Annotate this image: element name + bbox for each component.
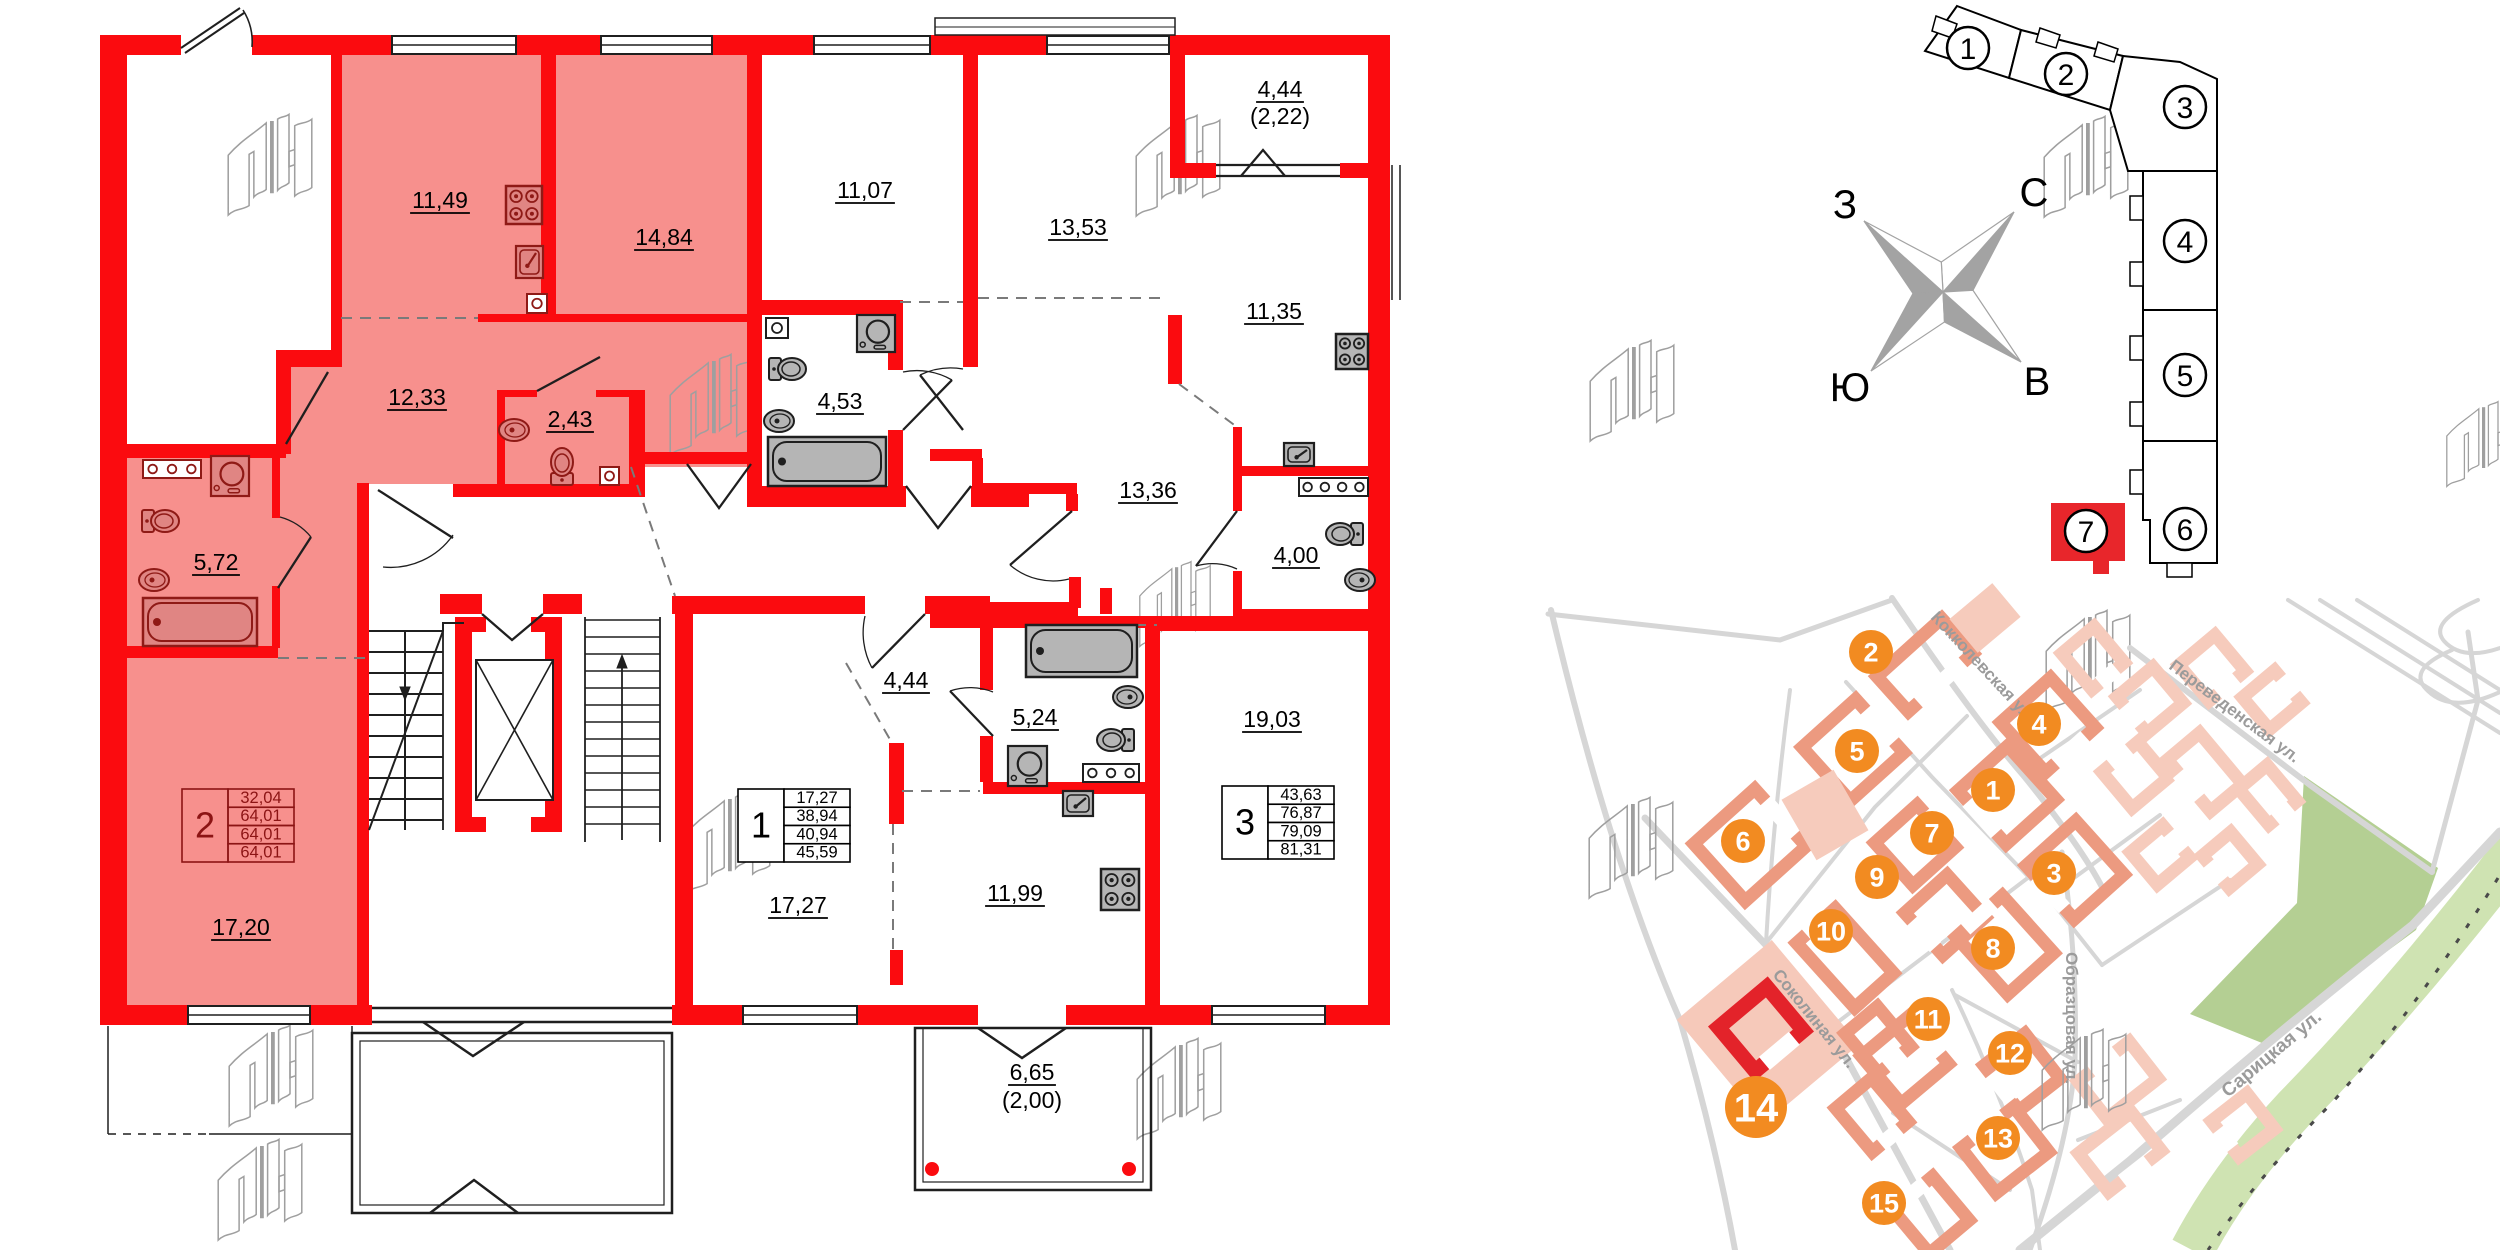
svg-text:1: 1 — [1960, 33, 1977, 66]
svg-text:12: 12 — [1995, 1039, 2025, 1069]
svg-text:6: 6 — [1735, 827, 1750, 857]
svg-text:11: 11 — [1914, 1005, 1943, 1035]
svg-text:6: 6 — [2177, 514, 2194, 547]
svg-text:17,20: 17,20 — [212, 914, 270, 940]
svg-text:64,01: 64,01 — [240, 825, 281, 843]
svg-text:14: 14 — [1734, 1086, 1779, 1130]
svg-text:11,07: 11,07 — [837, 177, 893, 203]
svg-text:Образцовая ул.: Образцовая ул. — [2062, 952, 2081, 1084]
svg-text:43,63: 43,63 — [1280, 786, 1321, 804]
svg-text:(2,22): (2,22) — [1250, 103, 1310, 129]
svg-text:10: 10 — [1816, 917, 1846, 947]
svg-text:3: 3 — [2046, 859, 2061, 889]
svg-text:12,33: 12,33 — [388, 384, 446, 410]
svg-text:В: В — [2024, 360, 2051, 404]
svg-text:45,59: 45,59 — [796, 844, 837, 862]
svg-text:8: 8 — [1985, 934, 2000, 964]
svg-text:13: 13 — [1983, 1124, 2013, 1154]
svg-text:40,94: 40,94 — [796, 825, 837, 843]
svg-text:32,04: 32,04 — [240, 789, 281, 807]
svg-text:2: 2 — [2058, 59, 2075, 92]
svg-text:5: 5 — [2177, 360, 2194, 393]
svg-text:4,00: 4,00 — [1274, 542, 1319, 568]
svg-text:11,99: 11,99 — [987, 880, 1043, 906]
svg-text:64,01: 64,01 — [240, 844, 281, 862]
svg-text:(2,00): (2,00) — [1002, 1087, 1062, 1113]
svg-text:14,84: 14,84 — [635, 224, 693, 250]
svg-text:4: 4 — [2031, 710, 2046, 740]
svg-text:5,24: 5,24 — [1013, 704, 1058, 730]
svg-text:6,65: 6,65 — [1010, 1059, 1055, 1085]
svg-text:З: З — [1833, 183, 1857, 227]
svg-text:4: 4 — [2177, 226, 2194, 259]
svg-text:17,27: 17,27 — [796, 789, 837, 807]
svg-text:3: 3 — [1235, 802, 1255, 843]
svg-text:4,53: 4,53 — [818, 388, 863, 414]
svg-text:3: 3 — [2177, 92, 2194, 125]
svg-text:13,53: 13,53 — [1049, 214, 1107, 240]
svg-text:17,27: 17,27 — [769, 892, 827, 918]
svg-text:4,44: 4,44 — [884, 667, 929, 693]
svg-text:9: 9 — [1869, 863, 1884, 893]
svg-text:76,87: 76,87 — [1280, 804, 1321, 822]
svg-text:38,94: 38,94 — [796, 807, 837, 825]
svg-text:19,03: 19,03 — [1243, 706, 1301, 732]
svg-text:81,31: 81,31 — [1280, 841, 1321, 859]
svg-text:2: 2 — [195, 805, 215, 846]
svg-text:11,49: 11,49 — [412, 187, 468, 213]
svg-text:2: 2 — [1863, 638, 1878, 668]
svg-text:15: 15 — [1869, 1189, 1899, 1219]
svg-text:11,35: 11,35 — [1246, 298, 1302, 324]
svg-text:С: С — [2020, 171, 2049, 215]
svg-text:13,36: 13,36 — [1119, 477, 1177, 503]
svg-text:7: 7 — [1924, 819, 1939, 849]
svg-text:7: 7 — [2078, 516, 2095, 549]
svg-text:5: 5 — [1849, 737, 1864, 767]
svg-text:64,01: 64,01 — [240, 807, 281, 825]
svg-text:1: 1 — [1985, 776, 2000, 806]
svg-text:5,72: 5,72 — [194, 549, 239, 575]
svg-text:2,43: 2,43 — [548, 406, 593, 432]
svg-text:79,09: 79,09 — [1280, 822, 1321, 840]
svg-text:1: 1 — [751, 805, 771, 846]
svg-text:4,44: 4,44 — [1258, 76, 1303, 102]
svg-text:Ю: Ю — [1830, 366, 1870, 410]
